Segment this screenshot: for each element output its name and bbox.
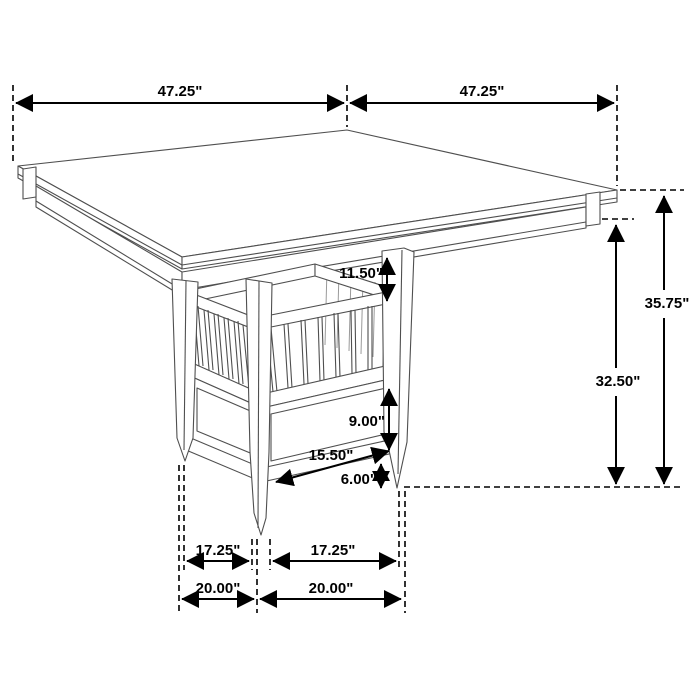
dim-outer-left: 20.00" [182, 580, 254, 599]
dim-label-top-width-left: 47.25" [158, 83, 203, 100]
dim-label-outer-right: 20.00" [309, 580, 354, 597]
dim-label-inner-right: 17.25" [311, 542, 356, 559]
dim-label-base-length: 15.50" [309, 447, 354, 464]
dim-inner-left: 17.25" [187, 542, 249, 561]
furniture-dimension-diagram: 47.25" 47.25" 35.75" 32.50" 11.50" 9.00"… [0, 0, 700, 700]
dim-label-overall-height: 35.75" [645, 295, 690, 312]
dim-label-top-width-right: 47.25" [460, 83, 505, 100]
diagram-canvas: 47.25" 47.25" 35.75" 32.50" 11.50" 9.00"… [0, 0, 700, 700]
dim-label-underside-height: 32.50" [596, 373, 641, 390]
dim-foot-height: 6.00" [341, 464, 381, 488]
dim-inner-right: 17.25" [273, 542, 396, 561]
dim-label-foot-height: 6.00" [341, 471, 377, 488]
dim-outer-right: 20.00" [260, 580, 401, 599]
dim-underside-height: 32.50" [596, 219, 641, 484]
dim-label-shelf-opening: 11.50" [339, 265, 383, 282]
dim-label-outer-left: 20.00" [196, 580, 241, 597]
dim-label-cabinet-height: 9.00" [349, 413, 385, 430]
corner-block-left [23, 167, 36, 199]
corner-block-right [586, 192, 600, 226]
dim-label-inner-left: 17.25" [196, 542, 241, 559]
table-drawing [18, 130, 617, 535]
